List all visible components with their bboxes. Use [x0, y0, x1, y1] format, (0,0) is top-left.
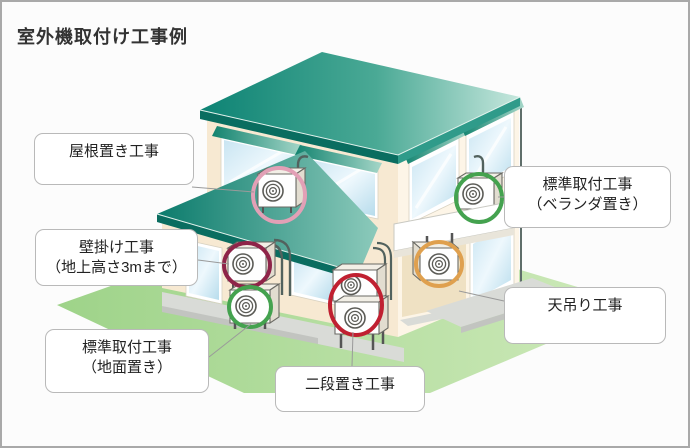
fan-icon — [233, 254, 253, 274]
fan-icon — [429, 254, 449, 274]
label-text: （地上高さ3mまで） — [36, 258, 197, 278]
label-text: 二段置き工事 — [276, 375, 424, 395]
label-text: 標準取付工事 — [505, 175, 670, 195]
label-text: （ベランダ置き） — [505, 195, 670, 215]
label-text: 標準取付工事 — [46, 338, 208, 358]
fan-icon — [263, 181, 283, 201]
label-text: 天吊り工事 — [505, 296, 665, 316]
page-title: 室外機取付け工事例 — [17, 23, 188, 49]
fan-icon — [463, 184, 483, 204]
installation-examples-diagram: 室外機取付け工事例 — [0, 0, 690, 448]
label-text: 屋根置き工事 — [35, 142, 193, 162]
label-standard-veranda: 標準取付工事 （ベランダ置き） — [504, 166, 671, 228]
label-two-tier: 二段置き工事 — [275, 366, 425, 412]
fan-icon — [236, 296, 256, 316]
label-text: 壁掛け工事 — [36, 238, 197, 258]
label-text: （地面置き） — [46, 358, 208, 378]
label-roof-placement: 屋根置き工事 — [34, 133, 194, 185]
label-ceiling-hung: 天吊り工事 — [504, 287, 666, 344]
label-wall-mounted: 壁掛け工事 （地上高さ3mまで） — [35, 229, 198, 286]
label-standard-ground: 標準取付工事 （地面置き） — [45, 329, 209, 393]
fan-icon — [345, 308, 365, 328]
